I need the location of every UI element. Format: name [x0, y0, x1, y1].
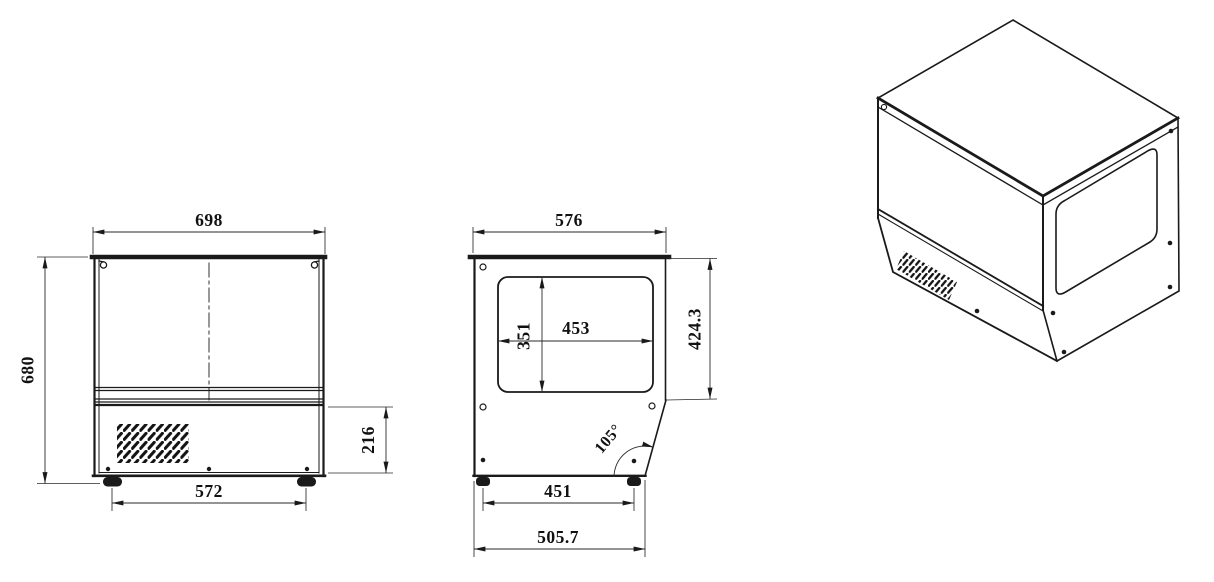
dim-front-height-label: 680 [18, 356, 38, 384]
iso-side-window [1056, 149, 1157, 294]
front-screw-dot [305, 467, 309, 471]
dim-front-height: 680 [18, 257, 101, 484]
front-screw-dot [207, 467, 211, 471]
iso-screw-dot [1168, 241, 1173, 246]
iso-base-edges [878, 218, 1057, 361]
iso-screw-dot [975, 309, 980, 314]
side-foot-right [627, 477, 641, 486]
dim-front-feet-span: 572 [112, 481, 306, 511]
dim-front-base-height: 216 [328, 407, 393, 473]
dim-side-depth: 576 [473, 210, 666, 253]
dim-side-window-width-label: 453 [562, 318, 590, 338]
technical-drawing: 698 680 216 572 [0, 0, 1214, 582]
side-front-slant-edge [645, 400, 666, 476]
dim-side-front-angle-label: 105° [592, 421, 626, 457]
dim-side-window-height-label: 351 [514, 322, 534, 350]
iso-vent-grille [896, 251, 957, 300]
iso-screw-dot [1169, 129, 1174, 134]
side-screw-hole [480, 404, 486, 410]
iso-top-front-edges [878, 98, 1178, 196]
dim-front-base-height-label: 216 [358, 426, 378, 454]
iso-screw-dot [1062, 350, 1067, 355]
front-foot-left [103, 477, 122, 487]
dim-side-body-height: 424.3 [667, 259, 717, 401]
side-screw-dot [632, 459, 637, 464]
side-view: 453 351 105° 576 424.3 [470, 210, 717, 557]
side-screw-dot [481, 458, 486, 463]
iso-corner-hook [881, 104, 886, 109]
iso-cap-edge [878, 107, 1178, 205]
dim-front-feet-span-label: 572 [195, 481, 223, 501]
dim-side-feet-span: 451 [483, 481, 634, 511]
dim-side-base-depth-label: 505.7 [537, 527, 579, 547]
dim-front-width-label: 698 [195, 210, 223, 230]
isometric-view [878, 20, 1179, 361]
front-corner-hook-right [311, 261, 319, 268]
front-view: 698 680 216 572 [18, 210, 394, 511]
front-corner-hook-left [99, 261, 107, 268]
dim-side-front-angle: 105° [592, 421, 654, 477]
dim-side-body-height-label: 424.3 [685, 308, 705, 350]
drawing-canvas: 698 680 216 572 [0, 0, 1214, 582]
dim-side-feet-span-label: 451 [544, 481, 572, 501]
front-foot-right [297, 477, 316, 487]
iso-right-face [1043, 118, 1179, 361]
iso-top-face [878, 20, 1178, 196]
side-screw-hole [480, 264, 486, 270]
dim-side-window-height: 351 [514, 277, 543, 392]
dim-side-depth-label: 576 [555, 210, 583, 230]
side-screw-hole [649, 403, 655, 409]
iso-screw-dot [1168, 285, 1173, 290]
dim-front-width: 698 [93, 210, 325, 254]
side-foot-left [476, 477, 490, 486]
front-vent-grille [117, 424, 189, 463]
front-screw-dot [106, 467, 110, 471]
iso-screw-dot [1051, 311, 1056, 316]
